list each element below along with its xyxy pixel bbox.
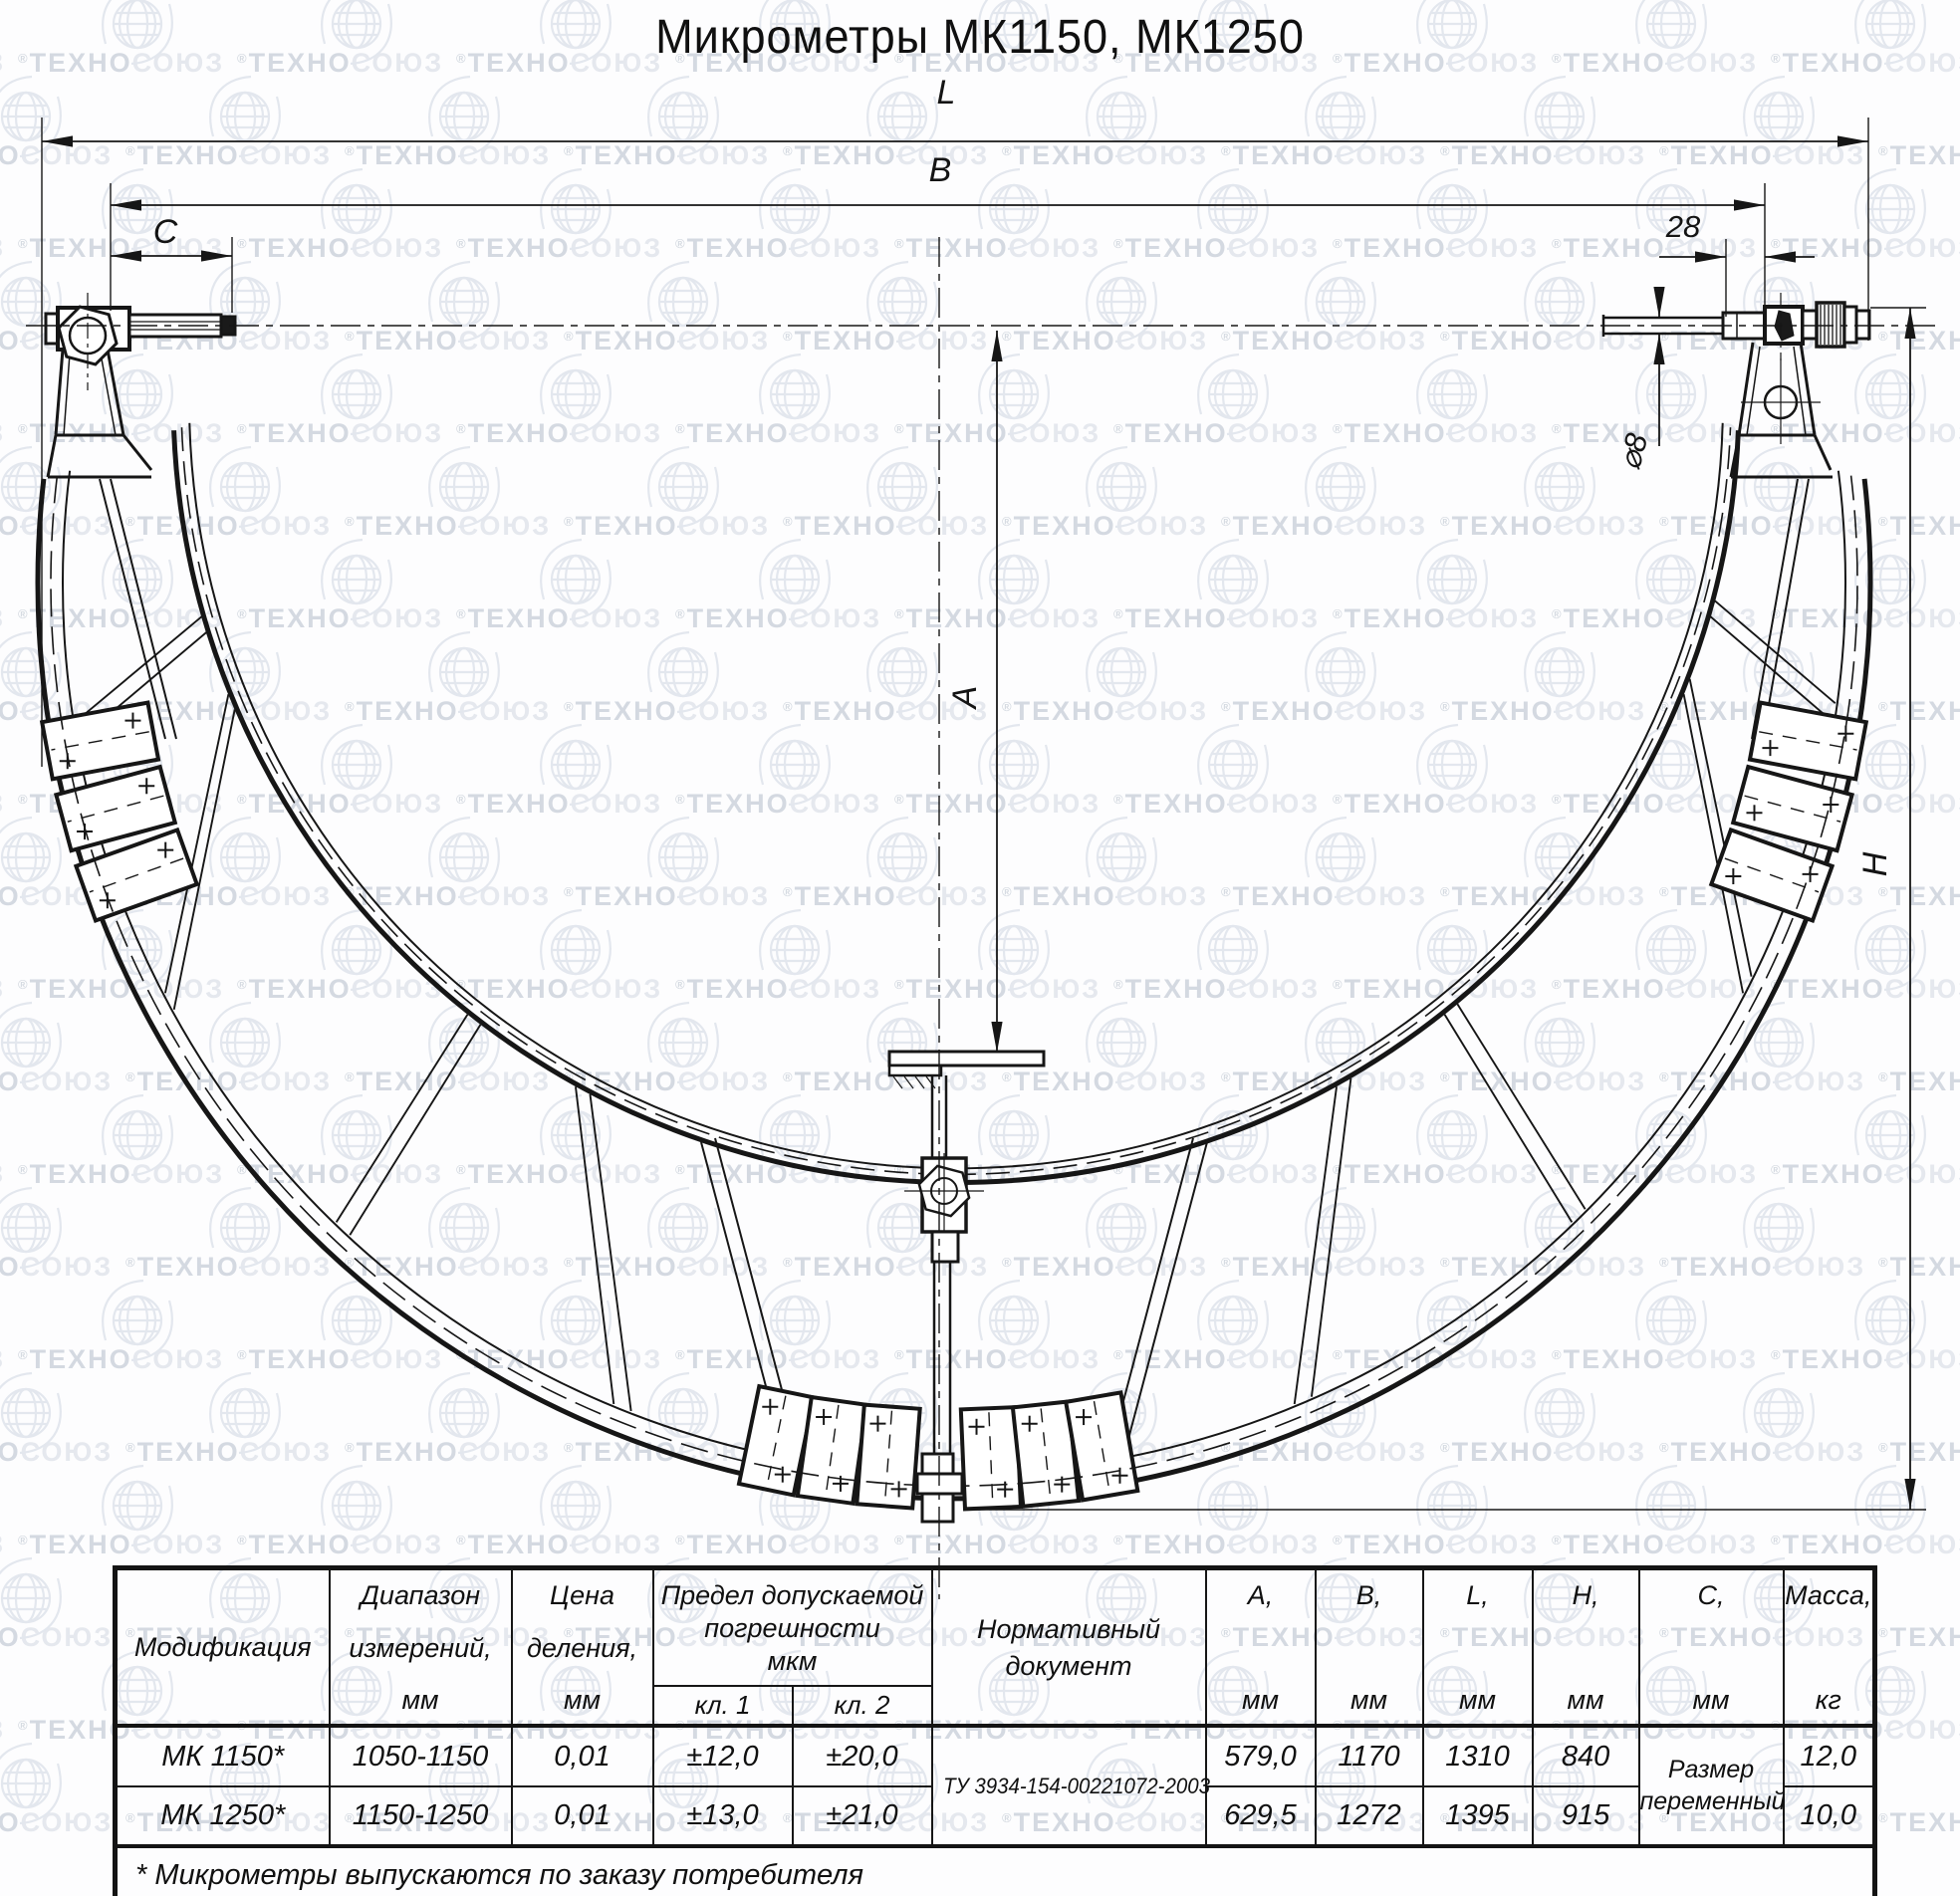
header-division: Ценаделения,мм: [512, 1568, 653, 1727]
cell-mass-1: 12,0: [1784, 1726, 1875, 1786]
header-b-unit: мм: [1350, 1685, 1387, 1716]
header-dim-l: L,мм: [1423, 1568, 1533, 1727]
drawing-title: Микрометры МК1150, МК1250: [59, 10, 1901, 65]
header-error-limit: Предел допускаемойпогрешностимкм: [653, 1568, 932, 1687]
dim-label-L: L: [937, 74, 956, 112]
dim-label-B: B: [929, 151, 952, 189]
cell-l-1: 1310: [1423, 1726, 1533, 1786]
header-b-symbol: В,: [1356, 1580, 1382, 1611]
header-normative: Нормативныйдокумент: [932, 1568, 1206, 1727]
cell-class1-1: ±12,0: [653, 1726, 793, 1786]
header-a-symbol: А,: [1248, 1580, 1274, 1611]
header-l-unit: мм: [1459, 1685, 1496, 1716]
cell-mod-1: МК 1150*: [116, 1726, 330, 1786]
header-dim-h: Н,мм: [1533, 1568, 1639, 1727]
dimension-labels: L B C 28 ⌀8 A H: [153, 74, 1894, 876]
header-range-line2: измерений,: [349, 1633, 491, 1664]
header-dim-c: С,мм: [1639, 1568, 1784, 1727]
header-division-unit: мм: [564, 1685, 601, 1716]
header-normative-line1: Нормативный: [977, 1614, 1160, 1645]
header-range-line1: Диапазон: [361, 1580, 480, 1611]
c-variable-line1: Размер: [1668, 1756, 1754, 1783]
cell-l-2: 1395: [1423, 1786, 1533, 1846]
cell-mass-2: 10,0: [1784, 1786, 1875, 1846]
header-dim-b: В,мм: [1316, 1568, 1423, 1727]
header-c-unit: мм: [1693, 1685, 1730, 1716]
frame-geometry: [38, 303, 1870, 1522]
header-h-symbol: Н,: [1573, 1580, 1599, 1611]
cell-normative: ТУ 3934-154-00221072-2003: [932, 1726, 1206, 1846]
cell-range-1: 1050-1150: [330, 1726, 512, 1786]
header-class1: кл. 1: [653, 1686, 793, 1726]
cell-class2-2: ±21,0: [793, 1786, 932, 1846]
dimension-lines: [26, 118, 1936, 1599]
table-row: МК 1150* 1050-1150 0,01 ±12,0 ±20,0 ТУ 3…: [116, 1726, 1875, 1786]
drawing-sheet: ®ТЕХНОСОЮЗ®ТЕХНОСОЮЗ®ТЕХНОСОЮЗ®ТЕХНОСОЮЗ…: [0, 0, 1960, 1896]
header-c-symbol: С,: [1698, 1580, 1725, 1611]
cell-b-1: 1170: [1316, 1726, 1423, 1786]
header-error-line1: Предел допускаемой: [661, 1580, 924, 1611]
cell-b-2: 1272: [1316, 1786, 1423, 1846]
header-l-symbol: L,: [1466, 1580, 1489, 1611]
dim-label-C: C: [153, 213, 178, 251]
header-mass-label: Масса,: [1785, 1580, 1871, 1611]
cell-division-1: 0,01: [512, 1726, 653, 1786]
header-class2: кл. 2: [793, 1686, 932, 1726]
cell-class2-1: ±20,0: [793, 1726, 932, 1786]
header-division-line1: Цена: [550, 1580, 614, 1611]
c-variable-line2: переменный: [1640, 1787, 1786, 1815]
header-mass: Масса,кг: [1784, 1568, 1875, 1727]
cell-h-2: 915: [1533, 1786, 1639, 1846]
header-range-unit: мм: [401, 1685, 438, 1716]
header-h-unit: мм: [1568, 1685, 1604, 1716]
cell-a-1: 579,0: [1206, 1726, 1316, 1786]
dim-label-28: 28: [1665, 209, 1701, 244]
header-range: Диапазонизмерений,мм: [330, 1568, 512, 1727]
header-modification: Модификация: [116, 1568, 330, 1727]
spec-table: Модификация Диапазонизмерений,мм Ценадел…: [113, 1565, 1877, 1896]
dim-label-dia8: ⌀8: [1611, 429, 1654, 473]
header-a-unit: мм: [1242, 1685, 1279, 1716]
header-division-line2: деления,: [527, 1633, 637, 1664]
header-error-line2: погрешности: [704, 1613, 880, 1644]
cell-mod-2: МК 1250*: [116, 1786, 330, 1846]
header-mass-unit: кг: [1816, 1685, 1841, 1716]
dim-label-A: A: [946, 686, 984, 711]
table-footnote: * Микрометры выпускаются по заказу потре…: [116, 1846, 1875, 1896]
cell-range-2: 1150-1250: [330, 1786, 512, 1846]
cell-h-1: 840: [1533, 1726, 1639, 1786]
cell-c-variable: Размер переменный: [1639, 1726, 1784, 1846]
header-normative-line2: документ: [1005, 1651, 1131, 1682]
dim-label-H: H: [1856, 851, 1894, 876]
cell-division-2: 0,01: [512, 1786, 653, 1846]
header-dim-a: А,мм: [1206, 1568, 1316, 1727]
cell-a-2: 629,5: [1206, 1786, 1316, 1846]
header-error-unit: мкм: [768, 1646, 818, 1677]
cell-class1-2: ±13,0: [653, 1786, 793, 1846]
normative-value: ТУ 3934-154-00221072-2003: [943, 1774, 1210, 1799]
